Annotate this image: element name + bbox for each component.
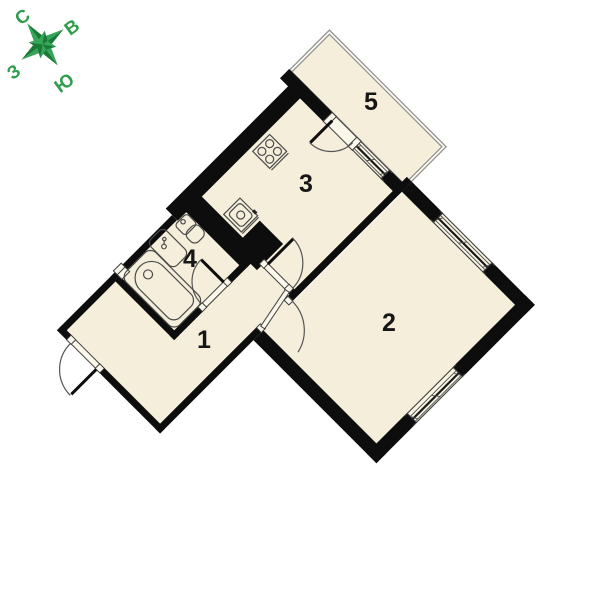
svg-text:4: 4: [183, 245, 197, 273]
svg-text:2: 2: [382, 309, 396, 337]
svg-text:5: 5: [364, 88, 378, 116]
svg-text:3: 3: [299, 170, 313, 198]
svg-text:1: 1: [197, 326, 211, 354]
